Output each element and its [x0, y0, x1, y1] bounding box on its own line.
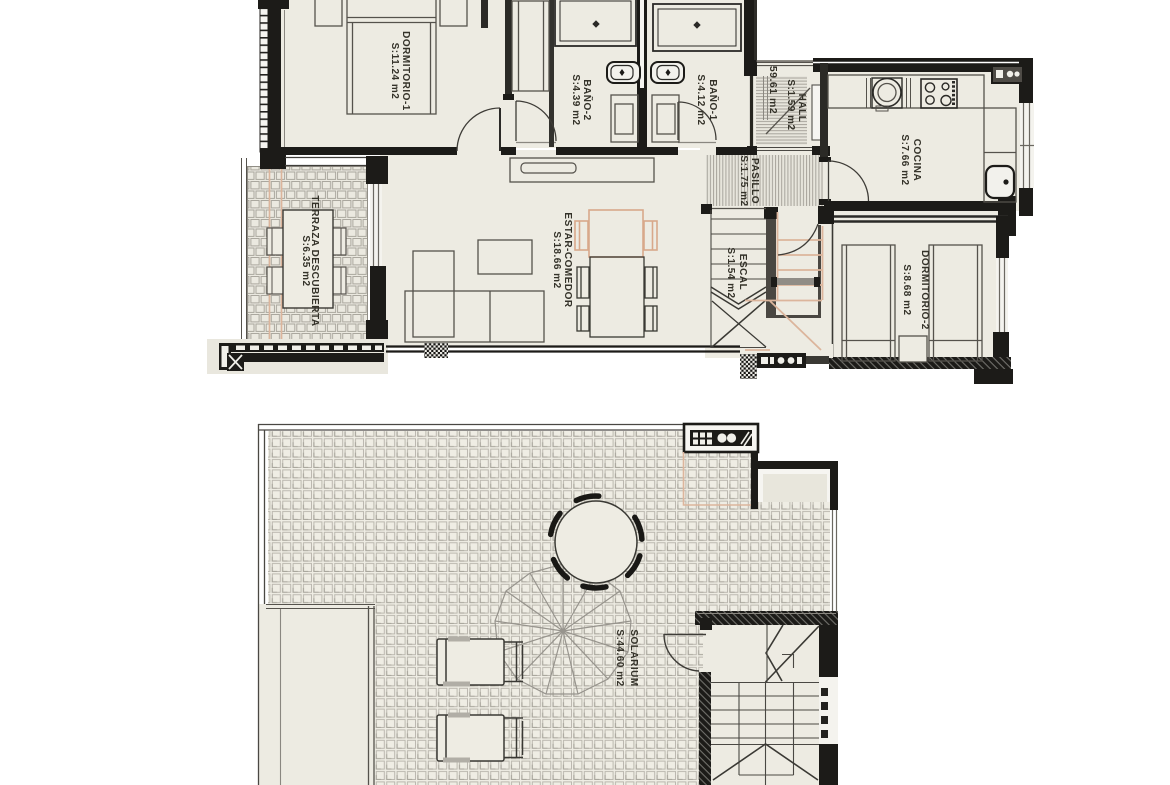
- svg-text:BAÑO-2: BAÑO-2: [581, 79, 594, 120]
- svg-text:BAÑO-1: BAÑO-1: [707, 79, 720, 120]
- svg-text:ESCAL: ESCAL: [737, 254, 748, 290]
- svg-text:HALL: HALL: [796, 94, 807, 123]
- svg-text:S:7.66 m2: S:7.66 m2: [899, 134, 910, 185]
- svg-text:S:1.59 m2: S:1.59 m2: [785, 79, 796, 130]
- svg-text:S:1.54 m2: S:1.54 m2: [725, 247, 736, 298]
- svg-text:ESTAR-COMEDOR: ESTAR-COMEDOR: [562, 212, 573, 307]
- svg-text:S:11.24 m2: S:11.24 m2: [389, 43, 400, 100]
- svg-text:S:4.39 m2: S:4.39 m2: [570, 74, 581, 125]
- svg-text:PASILLO: PASILLO: [749, 158, 760, 204]
- svg-text:S:8.68 m2: S:8.68 m2: [901, 264, 912, 315]
- svg-text:DORMITORIO-1: DORMITORIO-1: [400, 31, 411, 111]
- svg-text:S:1.75 m2: S:1.75 m2: [738, 155, 749, 206]
- svg-text:S:6.35 m2: S:6.35 m2: [300, 235, 311, 286]
- svg-text:S:44.60 m2: S:44.60 m2: [614, 629, 625, 686]
- svg-text:S:18.66 m2: S:18.66 m2: [551, 231, 562, 288]
- svg-text:DORMITORIO-2: DORMITORIO-2: [919, 250, 930, 330]
- svg-text:S:4.12 m2: S:4.12 m2: [695, 74, 706, 125]
- svg-text:59.61 m2: 59.61 m2: [767, 66, 779, 114]
- svg-text:COCINA: COCINA: [911, 139, 922, 181]
- svg-text:SOLARIUM: SOLARIUM: [628, 629, 639, 686]
